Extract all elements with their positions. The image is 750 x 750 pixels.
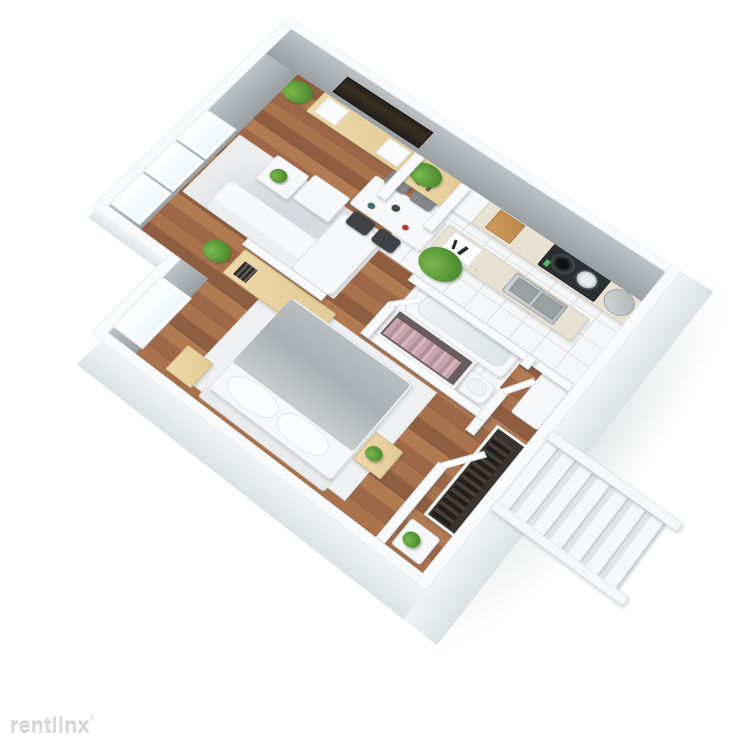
- board-utensil: [457, 246, 469, 255]
- watermark-tick: ʼ: [90, 714, 94, 728]
- cooktop-label: [543, 259, 552, 267]
- apartment-3d-plan: [0, 17, 714, 646]
- floor-plan-render: rentlinxʼ: [0, 0, 750, 750]
- table-setting-dish: [366, 201, 377, 210]
- table-setting-cup: [401, 224, 411, 232]
- sink-basin: [531, 293, 562, 320]
- rentlinx-watermark: rentlinxʼ: [10, 714, 94, 739]
- books-on-sideboard: [233, 261, 258, 283]
- board-knife: [451, 239, 457, 249]
- table-setting-pot: [390, 203, 402, 213]
- watermark-text: rentlinx: [10, 715, 90, 738]
